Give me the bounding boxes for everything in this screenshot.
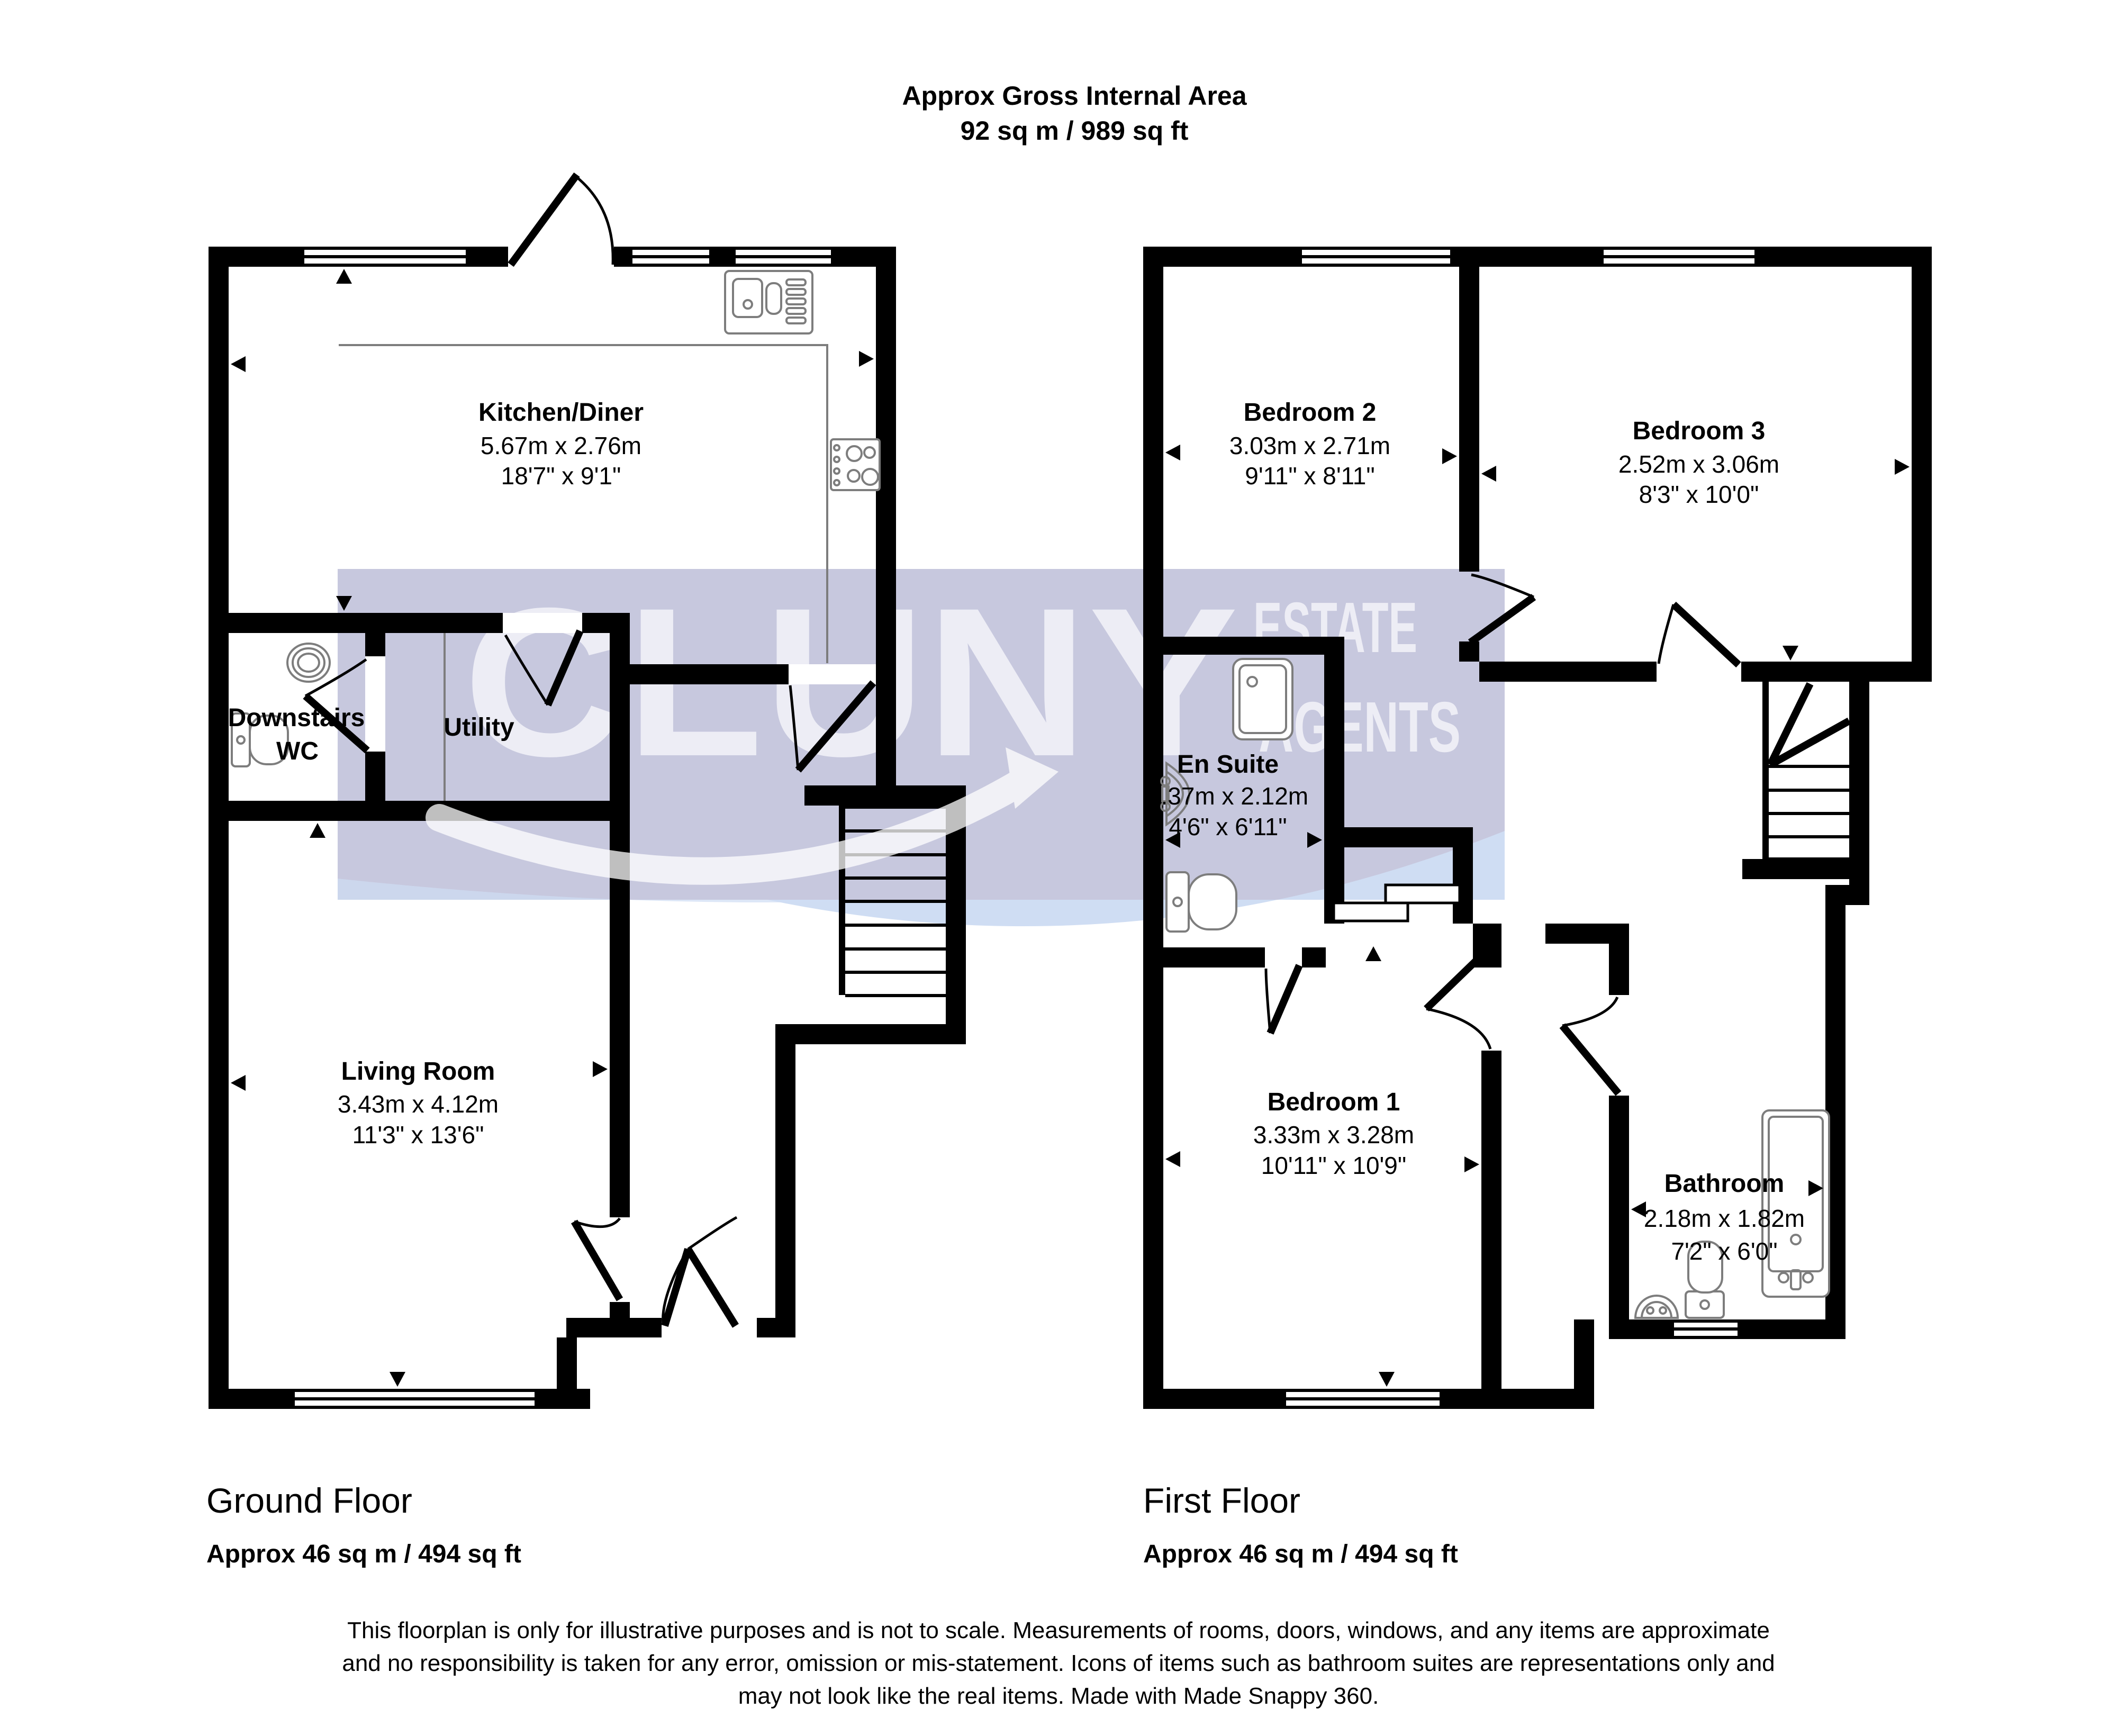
measure-arrow (1165, 445, 1180, 460)
first-floor-area: Approx 46 sq m / 494 sq ft (1143, 1540, 1458, 1568)
room-label: En Suite (1177, 751, 1279, 779)
room-dim-imperial: 11'3" x 13'6" (352, 1121, 484, 1149)
room-dim-metric: 2.52m x 3.06m (1618, 450, 1779, 478)
room-label: Downstairs (228, 704, 365, 732)
measure-arrow (336, 269, 352, 284)
window (1604, 247, 1754, 267)
page-title-line2: 92 sq m / 989 sq ft (961, 116, 1189, 146)
door (574, 1218, 620, 1299)
measure-arrow (231, 356, 246, 372)
room-label: Bedroom 2 (1244, 399, 1377, 427)
measure-arrow (1783, 646, 1798, 661)
measure-arrow (593, 1061, 608, 1077)
measure-arrow (859, 351, 874, 367)
room-dim-metric: 3.03m x 2.71m (1229, 432, 1390, 459)
window (1286, 1389, 1440, 1409)
door (508, 175, 614, 267)
room-dim-imperial: 9'11" x 8'11" (1245, 462, 1374, 490)
front-door (662, 1217, 757, 1337)
disclaimer-line3: may not look like the real items. Made w… (738, 1683, 1379, 1709)
measure-arrow (1481, 466, 1496, 482)
room-dim-metric: 5.67m x 2.76m (481, 432, 641, 459)
door (1657, 604, 1741, 682)
shower-icon (1233, 659, 1292, 739)
room-dim-imperial: 10'11" x 10'9" (1261, 1152, 1406, 1179)
header: Approx Gross Internal Area 92 sq m / 989… (902, 81, 1247, 146)
window (295, 1389, 535, 1409)
room-label: Bedroom 1 (1268, 1088, 1400, 1116)
stairs (1762, 682, 1849, 861)
room-label: Bedroom 3 (1633, 417, 1766, 445)
door (1266, 965, 1299, 1033)
first-floor-title: First Floor (1143, 1481, 1300, 1520)
floor-captions: Ground Floor Approx 46 sq m / 494 sq ft … (206, 1481, 1458, 1568)
basin-icon (1635, 1296, 1678, 1318)
measure-arrow (390, 1372, 405, 1387)
room-dim-metric: 3.33m x 3.28m (1253, 1121, 1414, 1149)
kitchen-sink-icon (725, 271, 812, 333)
window (1674, 1319, 1738, 1339)
measure-arrow (1379, 1372, 1395, 1387)
ground-floor-area: Approx 46 sq m / 494 sq ft (206, 1540, 521, 1568)
door (1562, 997, 1618, 1093)
window (1302, 247, 1450, 267)
toilet-icon (1166, 872, 1236, 932)
hob-icon (831, 439, 880, 490)
room-dim-imperial: 4'6" x 6'11" (1169, 813, 1287, 840)
window (736, 247, 831, 267)
window (632, 247, 709, 267)
disclaimer-line1: This floorplan is only for illustrative … (347, 1617, 1770, 1643)
measure-arrow (1365, 946, 1381, 961)
room-dim-metric: 3.43m x 4.12m (338, 1090, 499, 1118)
room-dim-metric: 1.37m x 2.12m (1147, 782, 1308, 810)
room-dim-imperial: 18'7" x 9'1" (501, 462, 621, 490)
window (304, 247, 466, 267)
page-title-line1: Approx Gross Internal Area (902, 81, 1247, 111)
bath-icon (1762, 1110, 1829, 1297)
room-dim-metric: 2.18m x 1.82m (1644, 1205, 1805, 1232)
basin-icon (287, 644, 330, 682)
first-floor-plan: Bedroom 2 3.03m x 2.71m 9'11" x 8'11" Be… (1143, 247, 1932, 1409)
measure-arrow (231, 1075, 246, 1091)
measure-arrow (1895, 459, 1910, 475)
measure-arrow (1165, 1151, 1180, 1167)
measure-arrow (1442, 448, 1457, 464)
floorplan-page: CLUNY ESTATE AGENTS (0, 0, 2117, 1736)
room-dim-imperial: 7'2" x 6'0" (1671, 1237, 1777, 1265)
measure-arrow (310, 823, 325, 838)
room-label: WC (276, 737, 319, 765)
room-label: Kitchen/Diner (478, 399, 644, 427)
room-label: Living Room (341, 1057, 495, 1086)
room-label: Utility (444, 713, 514, 742)
measure-arrow (1464, 1156, 1479, 1172)
room-label: Bathroom (1664, 1170, 1785, 1198)
disclaimer: This floorplan is only for illustrative … (342, 1617, 1775, 1709)
disclaimer-line2: and no responsibility is taken for any e… (342, 1650, 1775, 1676)
room-dim-imperial: 8'3" x 10'0" (1639, 481, 1759, 508)
ground-floor-title: Ground Floor (206, 1481, 412, 1520)
